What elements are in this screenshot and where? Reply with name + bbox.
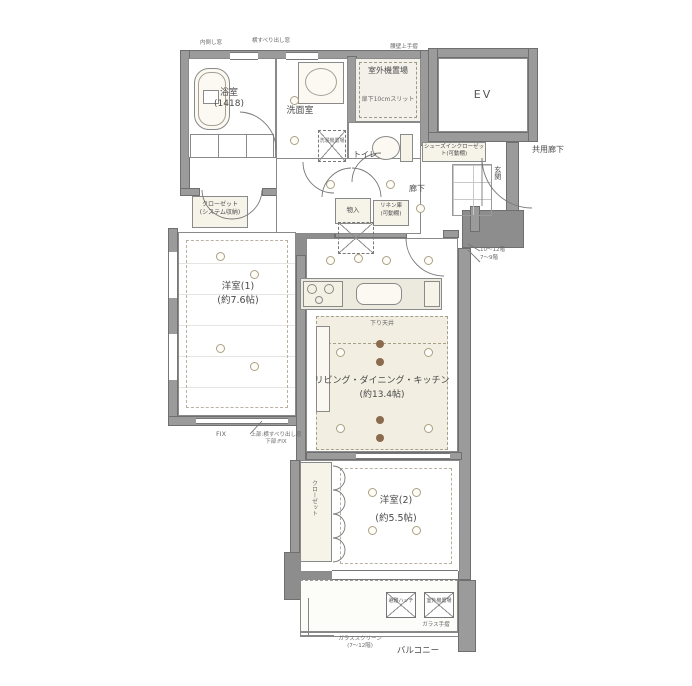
glass-screen-floors: (7〜12階): [347, 643, 373, 649]
light-west1-1: [216, 252, 225, 261]
wall-right-bottom: [458, 580, 476, 652]
elevator-label: EV: [458, 88, 508, 102]
bathroom-label: 浴室 (1418): [199, 88, 259, 111]
outdoor-unit-top-label: 室外機置場: [355, 66, 421, 76]
western2-window-band: [332, 570, 458, 580]
downlight-dot-1: [376, 340, 384, 348]
top-window-left-label: 内倒し窓: [186, 40, 236, 47]
light-washroom-2: [290, 136, 299, 145]
light-hall-2: [386, 180, 395, 189]
hall-duct-box: [338, 222, 374, 254]
light-ldk-1: [336, 348, 345, 357]
laundry-label: 洗濯機置場: [318, 138, 346, 145]
closet1-sub: (システム収納): [200, 209, 241, 216]
ldk-label: リビング・ダイニング・キッチン (約13.4帖): [307, 374, 457, 403]
hallway-label: 廊下: [404, 184, 430, 194]
window-west1-left-1: [168, 252, 178, 298]
stove-burner-2: [324, 284, 334, 294]
shoes-closet-label: シューズインクローゼット(可動棚): [423, 144, 485, 159]
washroom-label: 洗面室: [278, 106, 322, 117]
light-west1-4: [250, 362, 259, 371]
light-ldk-2: [424, 348, 433, 357]
western2-size: (約5.5帖): [375, 513, 417, 524]
western1-label: 洋室(1) (約7.6帖): [203, 280, 273, 309]
bathroom-name: 浴室: [220, 88, 238, 98]
window-note-upper: 上部:横すべり出し窓: [251, 432, 302, 438]
closet1-label: クローゼット (システム収納): [193, 201, 247, 218]
ldk-size: (約13.4帖): [359, 390, 404, 400]
light-kitchen-2: [354, 254, 363, 263]
balcony-step-2: [308, 598, 334, 636]
ldk-name: リビング・ダイニング・キッチン: [314, 376, 449, 386]
linen-name: リネン庫: [380, 203, 402, 209]
evacuation-hatch: [386, 592, 416, 618]
balcony-outdoor-unit-label: 室外機置場: [425, 598, 453, 605]
light-west1-3: [216, 344, 225, 353]
wall-ev-top: [428, 48, 538, 58]
window-ldk-sliding: [356, 453, 450, 459]
entrance-label: 玄関: [493, 166, 502, 180]
glass-rail-label: ガラス手摺: [414, 622, 458, 629]
floors-note-label: 10〜12階 7〜9階: [480, 247, 524, 262]
closet2-label: クローゼット: [310, 480, 318, 516]
window-west1-fix: [196, 418, 288, 424]
window-note-label: 上部:横すべり出し窓 下部:FIX: [236, 432, 316, 446]
glass-screen-label: ガラススクリーン (7〜12階): [330, 636, 390, 650]
glass-screen-name: ガラススクリーン: [338, 636, 382, 642]
wall-hall-top-a: [180, 188, 200, 196]
top-handrail-label: 腰壁上手摺: [380, 44, 428, 51]
light-kitchen-3: [382, 256, 391, 265]
light-hall-3: [416, 204, 425, 213]
shared-corridor-label: 共用廊下: [522, 145, 574, 155]
top-window-center-label: 横すべり出し窓: [236, 38, 306, 45]
kitchen-sink: [356, 283, 402, 305]
western1-dashed: [186, 240, 288, 408]
light-kitchen-4: [424, 256, 433, 265]
wall-west1-ldk: [296, 232, 306, 462]
bath-cabinet-row: [190, 134, 274, 158]
wall-shared-corridor: [506, 142, 519, 220]
western2-label: 洋室(2) (約5.5帖): [361, 492, 431, 528]
floors-lower: 7〜9階: [480, 255, 498, 261]
light-washroom-1: [290, 96, 299, 105]
storage-hall-label: 物入: [337, 206, 369, 214]
toilet-label: トイレ: [350, 150, 380, 160]
balcony-label: バルコニー: [388, 646, 448, 657]
outdoor-unit-note: 扉下10cmスリット: [352, 96, 424, 104]
downlight-dot-3: [376, 416, 384, 424]
wall-ev-bottom: [428, 132, 538, 142]
hatch-label: 避難ハッチ: [387, 598, 415, 605]
linen-sub: (可動棚): [381, 211, 402, 217]
bathroom-size: (1418): [214, 99, 244, 109]
toilet-tank: [400, 134, 413, 162]
light-west1-2: [250, 270, 259, 279]
western2-name: 洋室(2): [380, 495, 412, 506]
floor-plan: 浴室 (1418) 洗面室 室外機置場 扉下10cmスリット トイレ EV 共用…: [0, 0, 692, 686]
light-kitchen-1: [326, 256, 335, 265]
stove-burner-3: [315, 296, 323, 304]
wall-ev-right: [528, 48, 538, 142]
laundry-space: [318, 130, 346, 162]
wall-ldk-top-b: [443, 230, 459, 238]
western1-size: (約7.6帖): [217, 295, 259, 306]
window-top-washroom: [286, 52, 318, 60]
window-west1-left-2: [168, 334, 178, 380]
downlight-dot-2: [376, 358, 384, 366]
window-note-lower: 下部:FIX: [265, 439, 286, 445]
washstand-basin: [305, 68, 337, 96]
light-hall-1: [326, 180, 335, 189]
linen-label: リネン庫 (可動棚): [374, 203, 408, 218]
lowered-ceiling-label: 下り天井: [352, 320, 412, 328]
western1-name: 洋室(1): [222, 281, 254, 292]
light-ldk-4: [424, 424, 433, 433]
downlight-dot-4: [376, 434, 384, 442]
entrance-tiles: [452, 164, 492, 216]
window-top-bath: [230, 52, 258, 60]
floors-upper: 10〜12階: [480, 247, 505, 253]
balcony-outdoor-unit-box: [424, 592, 454, 618]
wall-ev-left: [428, 48, 438, 144]
light-ldk-3: [336, 424, 345, 433]
closet1-name: クローゼット: [202, 201, 238, 208]
stove-burner-1: [307, 284, 317, 294]
kitchen-cabinet: [424, 281, 440, 307]
fix-label: FIX: [206, 430, 236, 438]
